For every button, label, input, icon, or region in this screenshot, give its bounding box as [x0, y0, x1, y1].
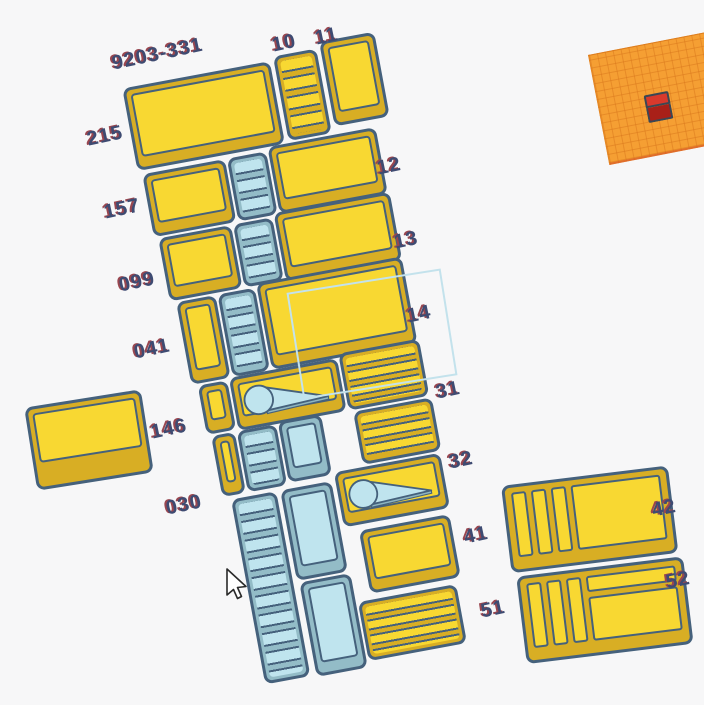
mouse-cursor-icon	[224, 567, 248, 601]
part-label-42[interactable]: 42	[650, 495, 679, 523]
tray-42[interactable]	[501, 465, 678, 573]
part-label-41[interactable]: 41	[462, 522, 491, 550]
tray-157[interactable]	[158, 225, 242, 301]
tray-52-slot[interactable]	[526, 582, 549, 648]
teardrop-cutout-icon[interactable]	[344, 464, 437, 518]
part-label-10[interactable]: 10	[270, 30, 299, 58]
part-label-52[interactable]: 52	[664, 567, 693, 595]
part-label-12[interactable]: 12	[375, 153, 404, 181]
part-label-31[interactable]: 31	[434, 377, 463, 405]
right-tray-group	[500, 456, 703, 676]
part-label-14[interactable]: 14	[405, 301, 434, 329]
viewport-3d[interactable]: 9203-331 10 11 215 12 157 13 099 14 041 …	[0, 0, 704, 705]
blue-tray-3[interactable]	[299, 573, 368, 677]
slat-rack-51[interactable]	[358, 584, 467, 661]
tray-41[interactable]	[359, 514, 461, 594]
part-label-099[interactable]: 099	[117, 267, 157, 297]
part-label-041[interactable]: 041	[132, 334, 172, 364]
blue-tray-1[interactable]	[278, 414, 333, 483]
part-label-51[interactable]: 51	[479, 596, 508, 624]
tray-42-slot[interactable]	[511, 491, 534, 557]
part-label-11[interactable]: 11	[313, 23, 340, 50]
standalone-box[interactable]	[24, 389, 154, 490]
red-cube[interactable]	[644, 91, 674, 123]
tray-42-slot[interactable]	[531, 489, 554, 555]
tray-52-slot[interactable]	[546, 579, 569, 645]
teardrop-cutout-icon[interactable]	[239, 369, 335, 424]
part-label-030[interactable]: 030	[164, 490, 204, 520]
part-label-215[interactable]: 215	[85, 121, 125, 151]
part-label-13[interactable]: 13	[392, 227, 421, 255]
part-label-157[interactable]: 157	[102, 194, 142, 224]
part-label-32[interactable]: 32	[447, 447, 476, 475]
tray-52-slot[interactable]	[566, 577, 589, 643]
part-label-146[interactable]: 146	[149, 414, 189, 444]
main-tray-group	[124, 25, 516, 705]
tray-42-slot[interactable]	[551, 486, 574, 552]
